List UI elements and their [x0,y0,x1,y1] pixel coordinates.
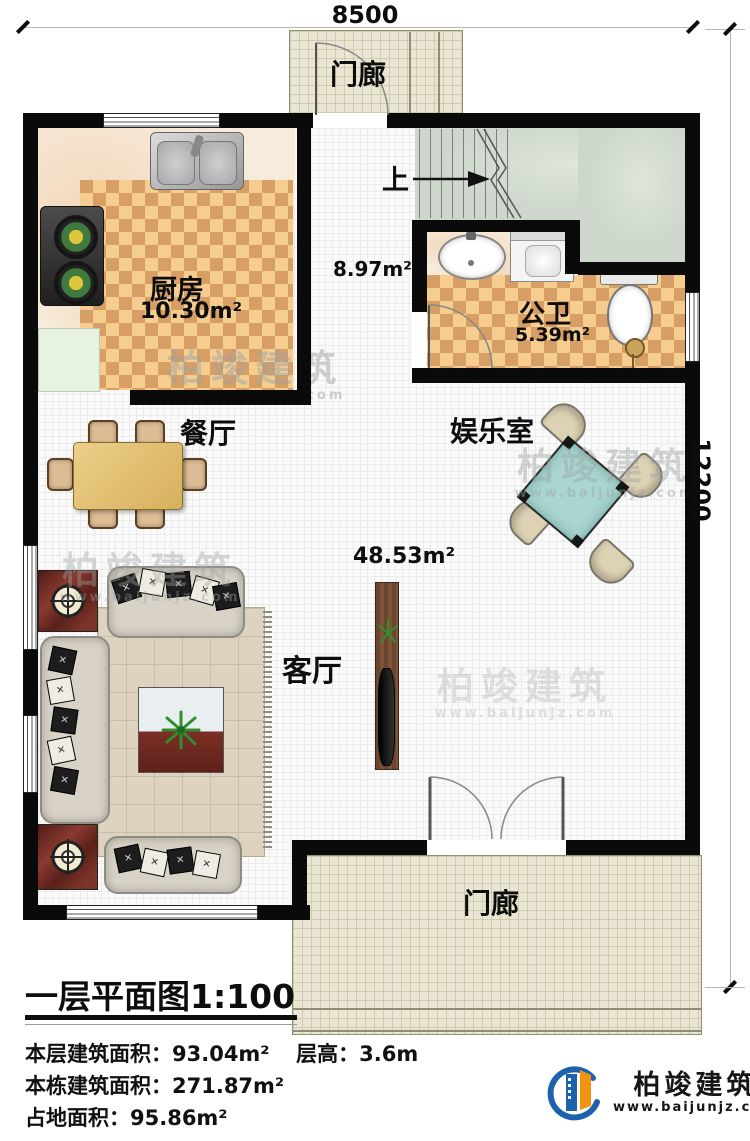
footer-area-building-label: 本栋建筑面积： [25,1074,172,1098]
door-opening-entry [427,840,566,855]
label-bathroom-area: 5.39m² [515,324,590,346]
logo-website: www.baijunjz.com [613,1100,750,1115]
plan-scale: 1:100 [190,977,295,1016]
company-logo: 柏竣建筑 www.baijunjz.com [543,1062,750,1124]
washer-door [525,245,561,277]
sofa-pillow: ✕ [46,676,75,705]
sink-tap [466,232,476,240]
stairs-landing-floor [578,128,685,262]
watermark-url: www.baijunjz.com [30,591,270,605]
logo-company: 柏竣建筑 [613,1071,750,1101]
wall-bathroom-top [412,220,575,232]
washer-panel [511,231,573,241]
watermark: 柏竣建筑 www.baijunjz.com [30,552,270,604]
label-dining: 餐厅 [180,412,236,452]
window-living-left-1 [23,545,38,650]
dimension-width: 8500 [320,1,410,29]
watermark-company: 柏竣建筑 [517,445,693,488]
footer-area-floor-value: 93.04m² [172,1042,270,1066]
rug-fringe [263,611,272,851]
title-underline-thin [25,1024,297,1025]
window-living-bottom [66,905,258,920]
dining-chair [47,458,74,491]
gas-stove [40,206,104,306]
label-living-area: 48.53m² [353,544,455,569]
watermark: 柏竣建筑 www.baijunjz.com [390,668,660,720]
door-opening-bathroom [412,312,427,368]
lamp [48,837,88,877]
watermark-company: 柏竣建筑 [167,347,343,390]
stair-treads [419,129,515,218]
wall-bottom-mid-left [292,840,427,855]
kitchen-sink [150,132,244,190]
sink-bowl [157,141,195,185]
footer-area-building: 本栋建筑面积：271.87m² [25,1070,284,1100]
label-porch-bottom: 门廊 [463,882,519,922]
side-table-lamp [37,824,98,890]
wall-top-right [462,113,700,128]
label-porch-top: 门廊 [330,53,386,93]
sofa-pillow: ✕ [166,846,194,874]
dining-chair [180,458,207,491]
coffee-table [138,687,224,773]
potted-plant [159,708,203,752]
dimension-ext-bottom-right [705,987,745,988]
stove-burner [54,261,98,305]
wall-bottom-mid-right [566,840,700,855]
floor-plan-canvas: ✕ ✕ ✕ ✕ ✕ ✕ ✕ ✕ ✕ ✕ ✕ ✕ ✕ ✕ [0,0,750,1141]
wall-kitchen-bottom [130,390,311,405]
logo-icon [543,1062,605,1124]
window-bathroom-right [685,292,700,362]
wall-bathroom-bottom [412,368,700,383]
title-underline-bar [25,1015,297,1020]
sofa-pillow: ✕ [50,706,78,734]
porch-bottom-step-line [293,1030,701,1032]
label-living: 客厅 [282,646,342,690]
bathroom-sink [438,234,506,280]
dining-table [73,442,183,510]
wall-landing-bottom [578,262,685,275]
dimension-line-right [730,29,731,987]
label-entertainment: 娱乐室 [450,410,534,450]
wall-bathroom-left [412,220,427,312]
logo-text: 柏竣建筑 www.baijunjz.com [613,1071,750,1116]
footer-area-building-value: 271.87m² [172,1074,284,1098]
sofa-pillow: ✕ [192,850,221,879]
label-hallway-area: 8.97m² [333,257,412,281]
watermark-company: 柏竣建筑 [437,665,613,708]
plan-title-text: 一层平面图 [25,977,190,1016]
footer-height-label: 层高： [296,1042,359,1066]
wall-left [23,113,38,920]
sofa-pillow: ✕ [50,766,79,795]
wall-porch-stub-left [290,113,315,128]
window-kitchen-top [103,113,220,128]
sofa-pillow: ✕ [140,848,170,878]
tv-wall-plant [377,618,399,648]
sink-drain [468,260,474,266]
toilet-bowl [607,284,653,346]
wall-kitchen-right [297,128,311,405]
floor-drain [625,338,645,358]
label-stairs-up: 上 [382,158,409,197]
stove-burner [54,215,98,259]
footer-area-land-value: 95.86m² [130,1106,228,1130]
toilet [600,266,656,346]
porch-top-rail-line [409,32,411,113]
window-living-left-2 [23,715,38,793]
wall-porch-stub-right [387,113,462,128]
sink-bowl [199,141,237,185]
door-opening-porch-top [313,113,387,128]
sofa-pillow: ✕ [48,646,78,676]
footer-area-floor-label: 本层建筑面积： [25,1042,172,1066]
footer-area-land-label: 占地面积： [25,1106,130,1130]
footer-area-floor: 本层建筑面积：93.04m² 层高：3.6m [25,1038,418,1068]
porch-top-rail-line [438,32,440,113]
porch-bottom-step-line [293,1008,701,1010]
watermark-url: www.baijunjz.com [390,707,660,721]
sofa-pillow: ✕ [47,736,77,766]
sofa-pillow: ✕ [114,844,144,874]
plan-title: 一层平面图1:100 [25,970,295,1018]
footer-height-value: 3.6m [359,1042,418,1066]
footer-area-land: 占地面积：95.86m² [25,1102,228,1132]
watermark-company: 柏竣建筑 [62,549,238,592]
kitchen-cabinet [38,328,100,392]
dimension-height: 12200 [687,435,715,525]
label-kitchen-area: 10.30m² [140,299,242,324]
